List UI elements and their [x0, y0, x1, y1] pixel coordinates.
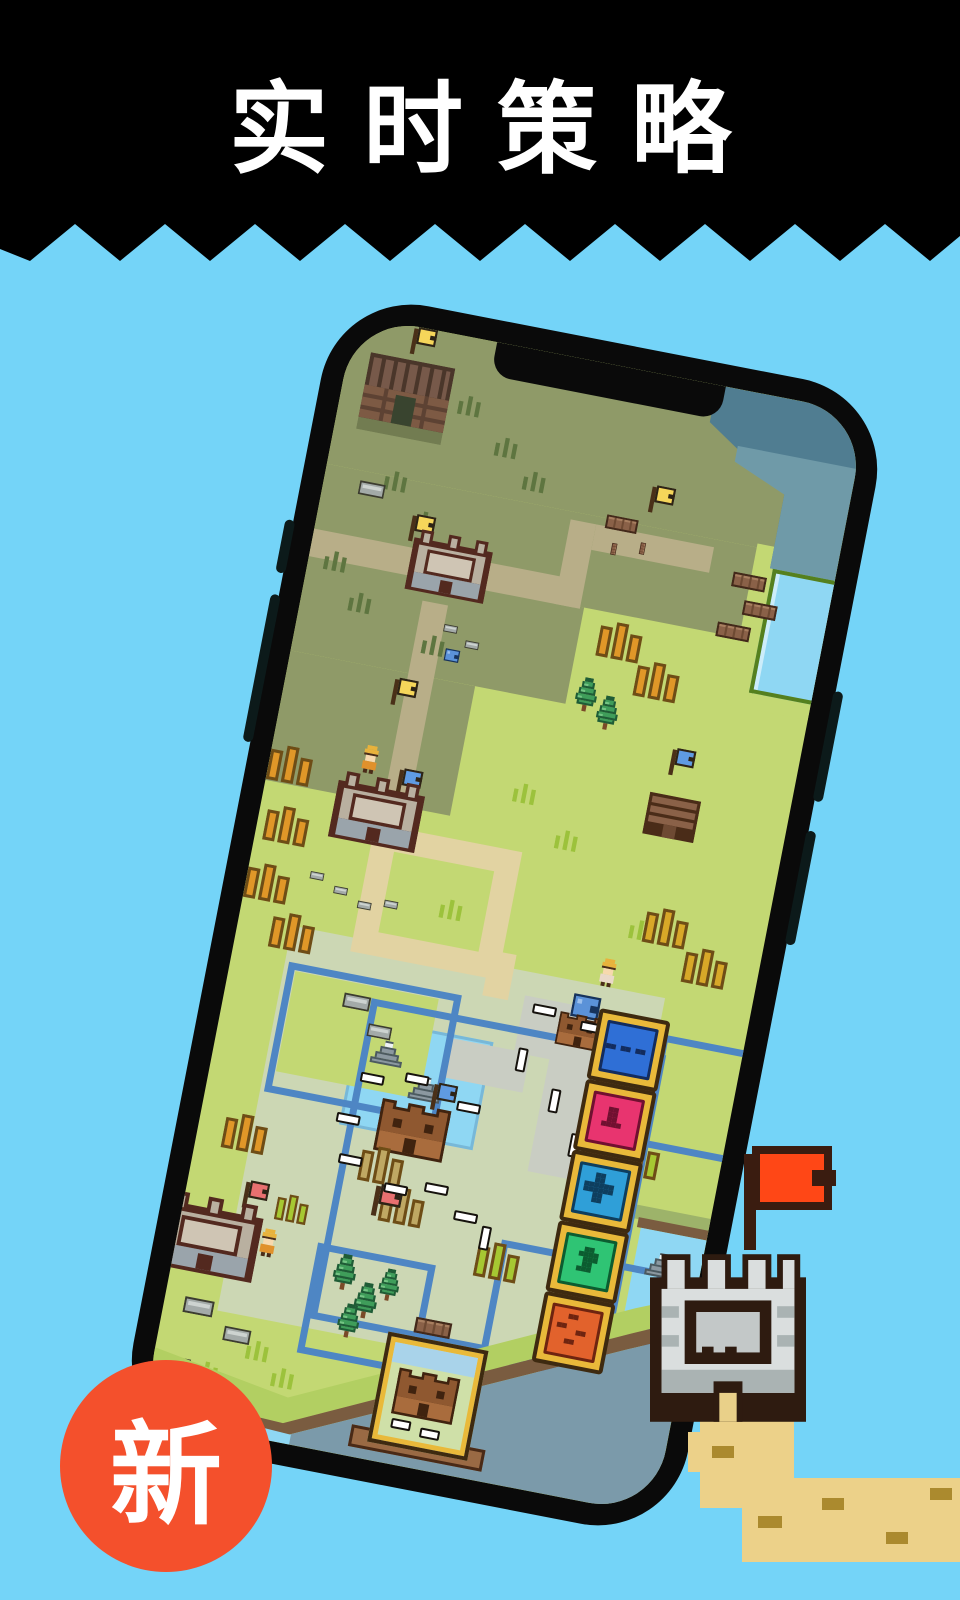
- stone-icon: [464, 638, 480, 651]
- unit-button-knight[interactable]: [545, 1220, 629, 1304]
- ruin-icon: [151, 1187, 266, 1292]
- knight-icon: [557, 1232, 618, 1293]
- plus-icon: [571, 1161, 632, 1222]
- page-title: 实时策略: [0, 48, 960, 193]
- stone-icon: [182, 1292, 215, 1317]
- volume-button: [242, 594, 280, 743]
- promo-screenshot: { "banner": { "title": "实时策略" }, "badge"…: [0, 0, 960, 1600]
- stone-icon: [356, 898, 372, 911]
- tee-icon: [584, 1090, 645, 1151]
- unit-button-tee[interactable]: [573, 1079, 657, 1163]
- villager-icon: [594, 957, 621, 989]
- wheat-icon: [220, 1111, 273, 1159]
- tuft-icon: [270, 1366, 299, 1391]
- unit-button-dots[interactable]: [531, 1291, 615, 1375]
- unit-button-plus[interactable]: [559, 1149, 643, 1233]
- tuft-icon: [512, 782, 541, 807]
- flag-icon: [665, 747, 696, 781]
- stone-icon: [383, 897, 399, 910]
- power-button-2: [785, 830, 817, 946]
- power-button: [812, 691, 843, 803]
- bluehouse-icon: [443, 648, 461, 665]
- pine-icon: [589, 693, 625, 734]
- wheat-icon: [632, 659, 685, 707]
- title-banner: 实时策略: [0, 0, 960, 224]
- ellipsis-icon: [598, 1020, 659, 1081]
- stone-icon: [443, 621, 459, 634]
- sand-dash: [712, 1446, 734, 1458]
- white-castle-icon: [650, 1254, 806, 1422]
- sand-path-step: [688, 1432, 700, 1472]
- wheat-icon: [680, 945, 733, 993]
- ruin-icon: [326, 768, 427, 861]
- wheat-icon: [267, 910, 320, 958]
- selection-dash: [419, 1427, 441, 1441]
- tuft-icon: [245, 1339, 274, 1364]
- wheat-icon: [265, 743, 318, 791]
- red-flag-icon: [740, 1146, 836, 1250]
- barn-icon: [356, 352, 455, 445]
- sand-dash: [930, 1488, 952, 1500]
- tuft-icon: [554, 829, 583, 854]
- sand-dash: [758, 1516, 782, 1528]
- ruinwood-icon: [641, 792, 701, 847]
- new-badge: 新: [60, 1360, 272, 1572]
- wheat-icon: [242, 860, 295, 908]
- sand-dash: [822, 1498, 844, 1510]
- castle-build-slot[interactable]: [367, 1331, 488, 1460]
- sand-dash: [886, 1532, 908, 1544]
- dots-icon: [543, 1302, 604, 1363]
- unit-button-ellipsis[interactable]: [586, 1008, 670, 1092]
- zigzag-edge: [0, 224, 960, 261]
- wheat-icon: [261, 803, 314, 851]
- ruin-icon: [403, 526, 495, 612]
- wheat-icon: [641, 905, 694, 953]
- wheat-icon: [273, 1192, 312, 1228]
- mute-switch: [275, 519, 295, 574]
- stone-icon: [309, 868, 325, 881]
- stone-icon: [333, 883, 349, 896]
- new-badge-label: 新: [110, 1385, 222, 1547]
